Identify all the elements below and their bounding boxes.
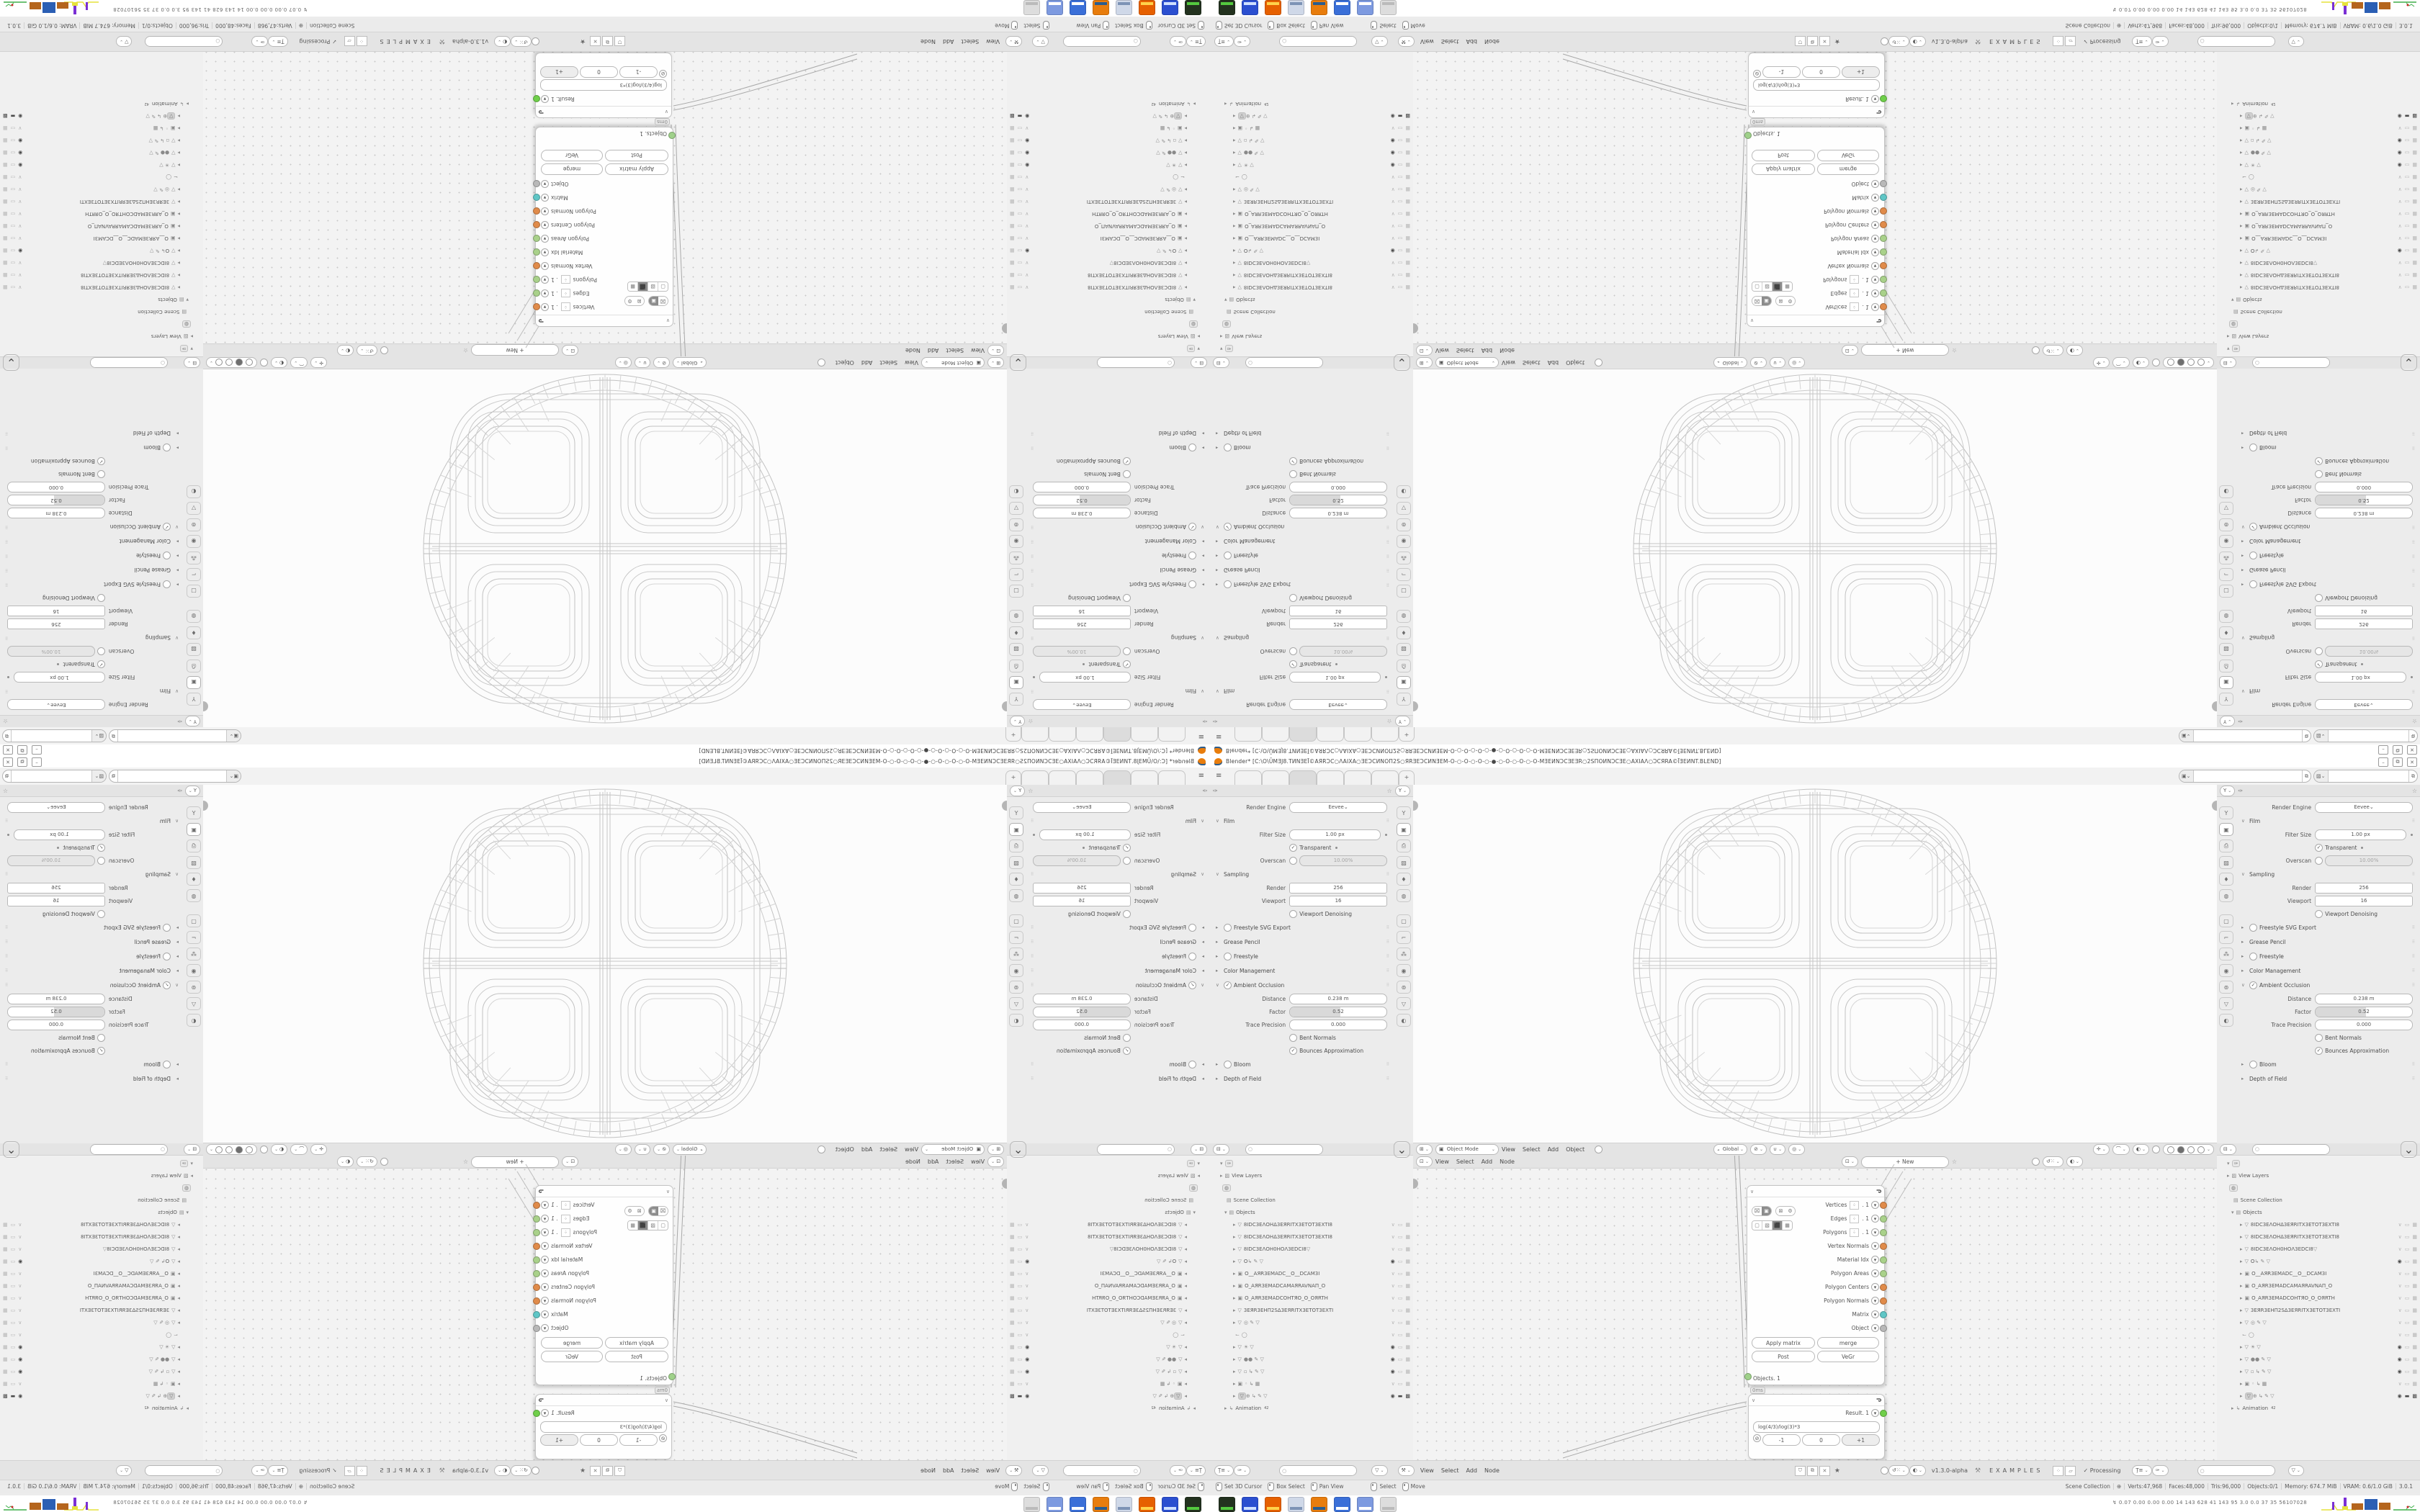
camera-icon[interactable]: ▦	[1010, 1295, 1015, 1301]
visibility-toggles[interactable]: ∨▭▦	[0, 199, 22, 205]
processing-check[interactable]: ✓ Processing	[2083, 1467, 2120, 1474]
section-freestyle[interactable]: ▸Freestyle⠿	[1210, 949, 1394, 963]
screen-icon[interactable]: ▭	[2405, 1381, 2410, 1387]
apply-matrix-button[interactable]: Apply matrix	[1752, 163, 1815, 175]
outliner-row[interactable]: ◍	[2218, 318, 2420, 330]
outliner-row[interactable]: ▸▽ ☀ ▽◉▭▦	[2218, 159, 2420, 171]
prop-control[interactable]: 1.00 px	[2315, 829, 2420, 840]
screen-icon[interactable]: ▭	[2405, 273, 2410, 279]
output-socket[interactable]	[533, 235, 540, 243]
tree-type-icon[interactable]: ⊡⌄	[1842, 1156, 1858, 1167]
closed-icon[interactable]: ∨	[1025, 224, 1028, 230]
transform-orientation-dropdown[interactable]: ⟓ Global⌄	[1713, 357, 1747, 368]
outliner-row[interactable]: ▸↳Animation42	[1007, 98, 1209, 110]
stepper-plus[interactable]: +1	[540, 1434, 578, 1446]
workspace-tabs[interactable]: +	[1234, 770, 1415, 785]
closed-icon[interactable]: ∨	[1391, 273, 1395, 279]
screen-icon[interactable]: ▭	[2405, 1222, 2410, 1228]
camera-icon[interactable]: ▦	[1405, 187, 1410, 193]
outliner-row[interactable]: ▸▽8IDC3EΛOHΔ3EЯRITX3ETOT3EXTI8∨▭▦	[1007, 1230, 1209, 1243]
animate-dot[interactable]	[1033, 677, 1035, 679]
camera-icon[interactable]: ▦	[2412, 1259, 2417, 1264]
material-tab-icon[interactable]: ◐	[187, 1014, 201, 1027]
stepper-minus[interactable]: -1	[619, 66, 658, 78]
screen-icon[interactable]: ▭	[11, 1320, 16, 1326]
constraints-tab-icon[interactable]: ⊚	[187, 981, 201, 994]
prop-value-field[interactable]: 0.238 m	[1033, 508, 1131, 519]
output-socket[interactable]	[533, 1325, 540, 1332]
snap-grid-icon[interactable]: ↺⁙⌄	[2043, 1156, 2063, 1167]
snap-magnet-icon[interactable]: ∪⌄	[1770, 357, 1785, 368]
prop-checkbox[interactable]	[97, 471, 105, 479]
outliner-row[interactable]: ▸▽8IDC3EΛOHΔ3EЯRITX3ETOT3EXTI8∨▭▦	[2218, 1230, 2420, 1243]
overlay-sphere-icon[interactable]: ◐⌄	[2066, 1156, 2083, 1167]
menu-add[interactable]: Add	[861, 1146, 873, 1153]
expand-arrow-icon[interactable]: ▸	[177, 163, 180, 168]
physics-tab-icon[interactable]: ◉	[2219, 964, 2233, 977]
constraints-tab-icon[interactable]: ⊚	[187, 518, 201, 531]
visibility-toggles[interactable]: ∨▭▦	[0, 1283, 22, 1289]
prop-checkbox[interactable]	[97, 857, 105, 865]
taskbar-apps[interactable]	[1219, 1497, 1397, 1512]
apply-matrix-button[interactable]: Apply matrix	[605, 163, 668, 175]
collapse-chevron-icon[interactable]: ∨	[1752, 1398, 1755, 1403]
section-checkbox[interactable]: ✓	[163, 981, 171, 989]
screen-icon[interactable]: ▭	[1018, 273, 1023, 279]
section-depth-of-field[interactable]: ▸Depth of Field⠿	[1026, 426, 1210, 441]
material-tab-icon[interactable]: ◐	[2219, 485, 2233, 498]
tool-tab-icon[interactable]: Y	[1009, 806, 1023, 819]
screen-icon[interactable]: ▭	[2405, 175, 2410, 181]
prop-control[interactable]: 1.00 px	[2315, 672, 2420, 683]
dropdown-circle-icon[interactable]: ▾	[541, 1409, 549, 1417]
socket-material-idx[interactable]: Material Idx▾	[1806, 1253, 1884, 1266]
prop-control[interactable]: Eevee⌄	[1026, 700, 1131, 711]
outliner-search-input[interactable]: ○	[1245, 358, 1323, 369]
stepper-row[interactable]: ⊘ -1 0 +1	[540, 1434, 667, 1446]
expand-arrow-icon[interactable]: ▸	[1184, 1234, 1187, 1240]
render-engine-dropdown[interactable]: Eevee⌄	[1033, 802, 1131, 813]
node-get-objects-data[interactable]: ∨ Ⴑ ⌧ ▣ ⊠ ⚙ ▢ ▧ ⬛ ▦ Vertices⁘. 1▾Edges⁘.…	[1747, 127, 1885, 327]
prop-control[interactable]: 10.00%	[1026, 647, 1131, 657]
closed-icon[interactable]: ∨	[1391, 1308, 1395, 1313]
expand-arrow-icon[interactable]: ▸	[1233, 1246, 1236, 1252]
editor-type-outliner-icon[interactable]: Ţ≡⌄	[268, 1465, 287, 1476]
visibility-toggles[interactable]: ∨▭▦	[2398, 1283, 2420, 1289]
visibility-toggles[interactable]: ∨▭▦	[0, 236, 22, 242]
outliner-row[interactable]: ▸▣O__AЯR3EMADC__O__DCAM3I∨▭▦	[1211, 233, 1413, 245]
open-icon[interactable]: ◉	[18, 1356, 22, 1362]
screen-icon[interactable]: ▭	[1398, 187, 1403, 193]
material-tab-icon[interactable]: ◐	[187, 485, 201, 498]
screen-icon[interactable]: ▭	[1018, 187, 1023, 193]
workspace-add-tab[interactable]: +	[1399, 727, 1415, 742]
outliner-row[interactable]: ▾▤Objects	[2218, 294, 2420, 306]
node-flag-icon[interactable]: Ⴑ	[1876, 1398, 1883, 1402]
visibility-toggles[interactable]: ∨▭▦	[1007, 1295, 1028, 1301]
socket-dropdown-circle[interactable]: ▾	[541, 1269, 549, 1277]
expand-arrow-icon[interactable]: ▾	[2227, 346, 2230, 352]
expand-arrow-icon[interactable]: ▸	[177, 285, 180, 291]
sidebar-collapse-notch[interactable]	[2212, 701, 2217, 711]
screen-icon[interactable]: ▭	[1018, 285, 1023, 291]
view-layer-selector[interactable]: ▨⌄ ⧉	[2, 729, 107, 742]
menu-add[interactable]: Add	[928, 1158, 939, 1165]
node-frame-icon[interactable]: ▱	[344, 1466, 355, 1476]
outliner-row[interactable]: ▾▤Objects	[1007, 1206, 1209, 1218]
open-icon[interactable]: ◉	[2398, 1393, 2402, 1399]
screen-icon[interactable]: ▭	[11, 1283, 16, 1289]
socket-dropdown-circle[interactable]: ▾	[541, 1283, 549, 1291]
camera-icon[interactable]: ▦	[1405, 1295, 1410, 1301]
open-icon[interactable]: ◉	[2398, 150, 2402, 156]
workspace-tab[interactable]	[1021, 727, 1049, 742]
prop-control[interactable]: 256	[0, 619, 105, 630]
section-sampling[interactable]: ∨Sampling⠿	[1026, 631, 1210, 645]
camera-icon[interactable]: ▦	[1405, 126, 1410, 132]
outliner-row[interactable]: ▸▽ ●● ✎ ▽◉▭▦	[0, 147, 202, 159]
visibility-toggles[interactable]: ∨▭▦	[0, 126, 22, 132]
prop-value-field[interactable]: 256	[1289, 883, 1387, 894]
camera-icon[interactable]: ▦	[1010, 1259, 1015, 1264]
section-checkbox[interactable]: ✓	[2249, 523, 2257, 531]
node-dots-icon[interactable]: ⁘	[357, 37, 367, 47]
shading-rendered[interactable]	[215, 359, 223, 366]
socket-dropdown-circle[interactable]: ▾	[541, 1297, 549, 1305]
screen-icon[interactable]: ▭	[1398, 199, 1403, 205]
search-input[interactable]: ○	[1063, 1465, 1141, 1476]
visibility-toggles[interactable]: ∨▭▦	[0, 1295, 22, 1301]
socket-dropdown-circle[interactable]: ▾	[541, 248, 549, 256]
outliner-row[interactable]: ▸▽ ◎ ✎ ▽∨▭▦	[1007, 1316, 1209, 1328]
expand-arrow-icon[interactable]: ▾	[190, 346, 193, 352]
prop-control[interactable]: 0.000	[1026, 1020, 1131, 1030]
modifiers-tab-icon[interactable]: ⌐	[1009, 931, 1023, 944]
physics-tab-icon[interactable]: ◉	[187, 535, 201, 548]
node-toggle-chips[interactable]: ⌧ ▣ ⊠ ⚙	[1752, 296, 1796, 306]
screen-icon[interactable]: ▭	[1398, 1332, 1403, 1338]
expand-arrow-icon[interactable]: ▸	[2240, 1393, 2243, 1399]
closed-icon[interactable]: ∨	[2398, 1222, 2402, 1228]
section-checkbox[interactable]	[2249, 581, 2257, 589]
screen-icon[interactable]: ▭	[2405, 1295, 2410, 1301]
section-bloom[interactable]: ▸Bloom⠿	[1210, 1057, 1394, 1071]
filter-funnel-icon[interactable]: ▽⌄	[1032, 1465, 1048, 1476]
outliner-row[interactable]: ▸▣O_AЯR3EMADCOHTЯO_O_OЯRTH∨▭▦	[1007, 1292, 1209, 1304]
socket-edges[interactable]: Edges⁘. 1▾	[536, 287, 614, 300]
closed-icon[interactable]: ∨	[2398, 1381, 2402, 1387]
screen-icon[interactable]: ▭	[2405, 126, 2410, 132]
view-layer-copy-button[interactable]: ⧉	[3, 770, 12, 782]
outliner-row[interactable]: ▸▣O_AЯR3EMADCAMAЯRAVNAΠ_O∨▭▦	[1007, 220, 1209, 233]
section-bloom[interactable]: ▸Bloom⠿	[1026, 1057, 1210, 1071]
camera-on-icon[interactable]: ▩	[2412, 1393, 2417, 1399]
open-icon[interactable]: ◉	[1391, 150, 1395, 156]
outliner-search-input[interactable]: ○	[1097, 1144, 1175, 1155]
prop-control[interactable]: 0.238 m	[2315, 508, 2420, 519]
outliner-row[interactable]: ▸▽O ↳ ✎ ▽◉▭▦	[0, 245, 202, 257]
screen-icon[interactable]: ▭	[1398, 150, 1403, 156]
screen-icon[interactable]: ▭	[1018, 1295, 1023, 1301]
vegr-button[interactable]: VeGr	[541, 150, 603, 161]
proportional-edit-icon[interactable]: ◎⌄	[615, 357, 632, 368]
output-socket[interactable]	[533, 1311, 540, 1318]
camera-icon[interactable]: ▦	[3, 261, 8, 266]
dropdown-circle-icon[interactable]: ▾	[541, 95, 549, 103]
screen-icon[interactable]: ▭	[11, 273, 16, 279]
data-tab-icon[interactable]: ▽	[1397, 502, 1411, 515]
menu-view[interactable]: View	[1502, 359, 1515, 366]
visibility-toggles[interactable]: ◉▭▦	[1007, 1356, 1029, 1362]
menu-node[interactable]: Node	[920, 38, 936, 45]
view-layer-tab-icon[interactable]: ▨	[1397, 856, 1411, 869]
scene-name-field[interactable]	[118, 770, 227, 782]
modifiers-tab-icon[interactable]: ⌐	[1397, 931, 1411, 944]
outliner-row[interactable]: ▸▽ ⊕ ↳ ✎ ▽◉▬▩	[0, 110, 202, 122]
blender-taskbar-icon[interactable]	[1093, 0, 1109, 15]
prop-value-field[interactable]: 256	[2315, 619, 2413, 630]
filter-funnel-icon[interactable]: Y⌄	[1395, 716, 1410, 727]
prop-control[interactable]: Eevee⌄	[1026, 802, 1131, 813]
outliner-row[interactable]: ⌙ ◯∨▭▦	[2218, 1328, 2420, 1341]
snap-chip[interactable]: ↺⁙⌄	[511, 36, 532, 47]
tree-type-icon[interactable]: ⊡⌄	[1842, 345, 1858, 356]
prop-checkbox[interactable]	[2315, 471, 2323, 479]
camera-icon[interactable]: ▦	[2412, 126, 2417, 132]
workspace-tab[interactable]	[1262, 770, 1289, 785]
prop-value-field[interactable]: 0.52	[1033, 1007, 1131, 1017]
firefox-taskbar-icon[interactable]	[1265, 1497, 1281, 1512]
prop-control[interactable]: 0.52	[2315, 1007, 2420, 1017]
expand-arrow-icon[interactable]: ▸	[1233, 1259, 1236, 1264]
output-tab-icon[interactable]: ⎙	[1397, 660, 1411, 672]
animate-dot[interactable]	[2361, 664, 2363, 666]
socket-polygon-normals[interactable]: Polygon Normals▾	[536, 1294, 614, 1308]
visibility-toggles[interactable]: ◉▭▦	[1391, 150, 1413, 156]
camera-icon[interactable]: ▦	[1010, 1234, 1015, 1240]
visibility-toggles[interactable]: ∨▭▦	[2398, 1332, 2420, 1338]
modifiers-tab-icon[interactable]: ⌐	[1009, 568, 1023, 581]
camera-icon[interactable]: ▦	[1405, 1271, 1410, 1277]
output-socket[interactable]	[533, 208, 540, 215]
section-grease-pencil[interactable]: ▸Grease Pencil⠿	[1210, 935, 1394, 949]
screen-icon[interactable]: ▭	[11, 1344, 16, 1350]
prop-value-field[interactable]: 1.00 px	[2315, 829, 2406, 840]
closed-icon[interactable]: ∨	[1391, 1246, 1395, 1252]
closed-icon[interactable]: ∨	[1025, 1295, 1028, 1301]
prop-value-field[interactable]: 16	[1033, 896, 1131, 906]
prop-control[interactable]: 0.238 m	[0, 994, 105, 1004]
outliner-row[interactable]: ▸▣O__AЯR3EMADC__O__DCAM3I∨▭▦	[2218, 233, 2420, 245]
visibility-toggles[interactable]: ◉▭▦	[2398, 138, 2420, 144]
visibility-toggles[interactable]: ∨▭▦	[0, 285, 22, 291]
checker-icon[interactable]: ▦	[1783, 282, 1792, 291]
outliner-row[interactable]: ▤Scene Collection	[0, 1194, 202, 1206]
pin-icon[interactable]: ☆	[1387, 719, 1392, 725]
vegr-button[interactable]: VeGr	[1817, 150, 1879, 161]
proportional-edit-icon[interactable]: ◎⌄	[615, 1144, 632, 1155]
socket-polygon-areas[interactable]: Polygon Areas▾	[1806, 1266, 1884, 1280]
visibility-toggles[interactable]: ◉▭▦	[2398, 1259, 2420, 1264]
screen-on-icon[interactable]: ▬	[2405, 114, 2410, 120]
prop-control[interactable]: ✓Bounces Approximation	[1289, 1047, 1394, 1055]
world-tab-icon[interactable]: ◍	[1009, 889, 1023, 902]
expand-arrow-icon[interactable]: ▸	[1233, 248, 1236, 254]
expand-arrow-icon[interactable]: ▾	[190, 1161, 193, 1166]
outliner-row[interactable]: ▾✑	[1211, 1157, 1413, 1169]
outliner-row[interactable]: ▸↳Animation42	[1211, 1402, 1413, 1414]
scene-selector[interactable]: ▣⌄ ⧉	[2179, 729, 2311, 742]
node-frame-icon[interactable]: ▱	[2065, 1466, 2076, 1476]
camera-icon[interactable]: ▦	[1010, 1222, 1015, 1228]
prop-value-field[interactable]: 16	[2315, 606, 2413, 617]
outliner-row[interactable]: ▸▣ ◦ ↳ ▦∨▭▦	[1007, 1377, 1209, 1390]
outliner-row[interactable]: ▸▽3EЯR3EHΠ2SΔ3EЯRITX3ETOT3EXTI∨▭▦	[1007, 196, 1209, 208]
screen-icon[interactable]: ▭	[11, 1259, 16, 1264]
camera-icon[interactable]: ▦	[1010, 163, 1015, 168]
save-tool-taskbar-icon[interactable]	[1242, 0, 1258, 15]
expand-arrow-icon[interactable]: ▸	[2240, 1369, 2243, 1374]
display-mode-dropdown[interactable]: ⊟⌄	[2220, 358, 2236, 369]
collapse-chevron-icon[interactable]: ∨	[666, 318, 670, 324]
outliner-row[interactable]: ▸▽3EЯR3EHΠ2SΔ3EЯRITX3ETOT3EXTI∨▭▦	[1007, 1304, 1209, 1316]
outliner-row[interactable]: ▸▽ ◎ ✎ ▽∨▭▦	[2218, 1316, 2420, 1328]
prop-value-field[interactable]: 0.000	[2315, 482, 2413, 493]
visibility-toggles[interactable]: ∨▭▦	[0, 175, 22, 181]
view-layer-copy-button[interactable]: ⧉	[3, 730, 12, 742]
workspace-tab[interactable]	[1103, 727, 1131, 742]
visibility-toggles[interactable]: ∨▭▦	[1391, 224, 1413, 230]
socket-material-idx[interactable]: Material Idx▾	[1806, 246, 1884, 259]
workspace-tabs[interactable]: +	[1234, 727, 1415, 742]
outliner-row[interactable]: ▸▣O_AЯR3EMADCAMAЯRAVNAΠ_O∨▭▦	[2218, 1279, 2420, 1292]
prop-control[interactable]: Eevee⌄	[1289, 802, 1394, 813]
properties-editor-icon[interactable]: ✑	[1202, 719, 1207, 725]
prop-checkbox[interactable]	[2315, 857, 2323, 865]
socket-material-idx[interactable]: Material Idx▾	[536, 1253, 614, 1266]
camera-icon[interactable]: ▦	[2412, 1283, 2417, 1289]
screen-icon[interactable]: ▭	[2405, 1344, 2410, 1350]
socket-matrix[interactable]: Matrix▾	[1806, 1308, 1884, 1321]
workspace-tabs[interactable]: +	[1005, 770, 1186, 785]
pin-star-icon[interactable]: ★	[1834, 38, 1840, 45]
expand-arrow-icon[interactable]: ▸	[1184, 150, 1187, 156]
open-icon[interactable]: ◉	[18, 150, 22, 156]
screen-icon[interactable]: ▭	[1018, 1246, 1023, 1252]
socket-vertex-normals[interactable]: Vertex Normals▾	[536, 1239, 614, 1253]
checker-icon[interactable]: ▦	[628, 1221, 637, 1230]
camera-icon[interactable]: ▦	[3, 1369, 8, 1374]
socket-dropdown-circle[interactable]: ▾	[541, 1228, 549, 1236]
outliner-row[interactable]: ▸▣O_AЯR3EMADCAMAЯRAVNAΠ_O∨▭▦	[1211, 220, 1413, 233]
save-tool-taskbar-icon[interactable]	[1162, 0, 1178, 15]
prop-control[interactable]: 1.00 px	[1289, 672, 1394, 683]
menu-object[interactable]: Object	[835, 359, 854, 366]
prop-value-field[interactable]: 0.238 m	[7, 508, 105, 519]
expand-arrow-icon[interactable]: ▸	[177, 187, 180, 193]
expand-arrow-icon[interactable]: ▸	[1184, 1393, 1187, 1399]
save-tool-taskbar-icon[interactable]	[1242, 1497, 1258, 1512]
section-bloom[interactable]: ▸Bloom⠿	[2236, 1057, 2420, 1071]
expand-arrow-icon[interactable]: ▸	[1184, 1381, 1187, 1387]
camera-icon[interactable]: ▦	[1010, 224, 1015, 230]
prop-value-field[interactable]: 10.00%	[1299, 647, 1387, 657]
expand-arrow-icon[interactable]: ▸	[1233, 1295, 1236, 1301]
prop-control[interactable]: 0.000	[0, 482, 105, 493]
overlay-sphere-icon[interactable]: ◐⌄	[2066, 345, 2083, 356]
open-icon[interactable]: ◉	[2398, 1356, 2402, 1362]
prop-control[interactable]: Bent Normals	[2315, 1034, 2420, 1042]
output-socket[interactable]	[533, 222, 540, 229]
section-checkbox[interactable]	[1224, 444, 1232, 452]
outliner-row[interactable]: ▸▣O__AЯR3EMADC__O__DCAM3I∨▭▦	[1007, 233, 1209, 245]
prop-value-field[interactable]: 0.52	[1289, 495, 1387, 506]
expand-arrow-icon[interactable]: ▾	[2231, 297, 2234, 303]
socket-edges[interactable]: Edges⁘. 1▾	[536, 1212, 614, 1225]
output-socket[interactable]	[1880, 1215, 1887, 1223]
expand-arrow-icon[interactable]: ▸	[1224, 102, 1227, 107]
prop-control[interactable]: ✓Transparent	[1026, 661, 1131, 669]
visibility-toggles[interactable]: ◉▭▦	[1391, 1259, 1413, 1264]
socket-dropdown-circle[interactable]: ▾	[541, 276, 549, 284]
output-tab-icon[interactable]: ⎙	[1009, 840, 1023, 852]
filter-funnel-icon[interactable]: Y⌄	[1010, 786, 1025, 796]
menu-add[interactable]: Add	[1482, 1158, 1493, 1165]
workspace-tab[interactable]	[1158, 727, 1186, 742]
scene-tab-icon[interactable]: ♦	[1009, 626, 1023, 639]
socket-object[interactable]: Object▾	[536, 177, 614, 191]
copy-icon[interactable]: ⧉	[1807, 1466, 1818, 1476]
visibility-toggles[interactable]: ◉▭▦	[2398, 1369, 2420, 1374]
animate-dot[interactable]	[1385, 677, 1387, 679]
shading-rendered[interactable]	[215, 1146, 223, 1153]
output-socket[interactable]	[1880, 208, 1887, 215]
workspace-tab[interactable]	[1049, 727, 1076, 742]
outliner-row[interactable]: ▸↳Animation42	[2218, 98, 2420, 110]
scene-tab-icon[interactable]: ♦	[2219, 626, 2233, 639]
node-editor-menus[interactable]: ViewSelectAddNode	[898, 1158, 985, 1165]
stepper-row[interactable]: ⊘ -1 0 +1	[1753, 1434, 1880, 1446]
open-icon[interactable]: ◉	[1025, 114, 1029, 120]
notepad-taskbar-icon[interactable]	[1116, 0, 1132, 15]
wire-cube-icon[interactable]: ▧	[647, 1221, 658, 1230]
expand-arrow-icon[interactable]: ▸	[186, 102, 189, 107]
node-frame-icon[interactable]: ▱	[344, 37, 355, 47]
socket-dropdown-circle[interactable]: ▾	[1871, 1269, 1879, 1277]
screen-icon[interactable]: ▭	[1018, 1320, 1023, 1326]
section-checkbox[interactable]: ✓	[1188, 981, 1196, 989]
mesh-x-icon[interactable]: ⌧	[658, 1207, 668, 1215]
filter-dropdown[interactable]: ⌄	[3, 355, 19, 372]
visibility-toggles[interactable]: ∨▭▦	[2398, 199, 2420, 205]
prop-value-field[interactable]: 0.238 m	[1289, 508, 1387, 519]
closed-icon[interactable]: ∨	[1025, 126, 1028, 132]
outliner-row[interactable]: ▸▽8IDC3EΛOHΔ3EЯRITX3ETOT3EXTI8∨▭▦	[1211, 282, 1413, 294]
closed-icon[interactable]: ∨	[18, 261, 22, 266]
visibility-toggles[interactable]: ∨▭▦	[0, 1332, 22, 1338]
prop-control[interactable]: 256	[1289, 619, 1394, 630]
section-checkbox[interactable]	[1224, 581, 1232, 589]
outliner-row[interactable]: ▸▽8IDC3EΛOHΔ3EЯRITX3ETOT3EXTI8∨▭▦	[1007, 282, 1209, 294]
camera-icon[interactable]: ▦	[1010, 236, 1015, 242]
open-icon[interactable]: ◉	[18, 163, 22, 168]
post-button[interactable]: Post	[605, 1351, 668, 1362]
prop-value-field[interactable]: 16	[1289, 606, 1387, 617]
prop-control[interactable]: 16	[0, 896, 105, 906]
screen-icon[interactable]: ▭	[2405, 1332, 2410, 1338]
visibility-toggles[interactable]: ∨▭▦	[1391, 1246, 1413, 1252]
output-socket[interactable]	[533, 290, 540, 297]
